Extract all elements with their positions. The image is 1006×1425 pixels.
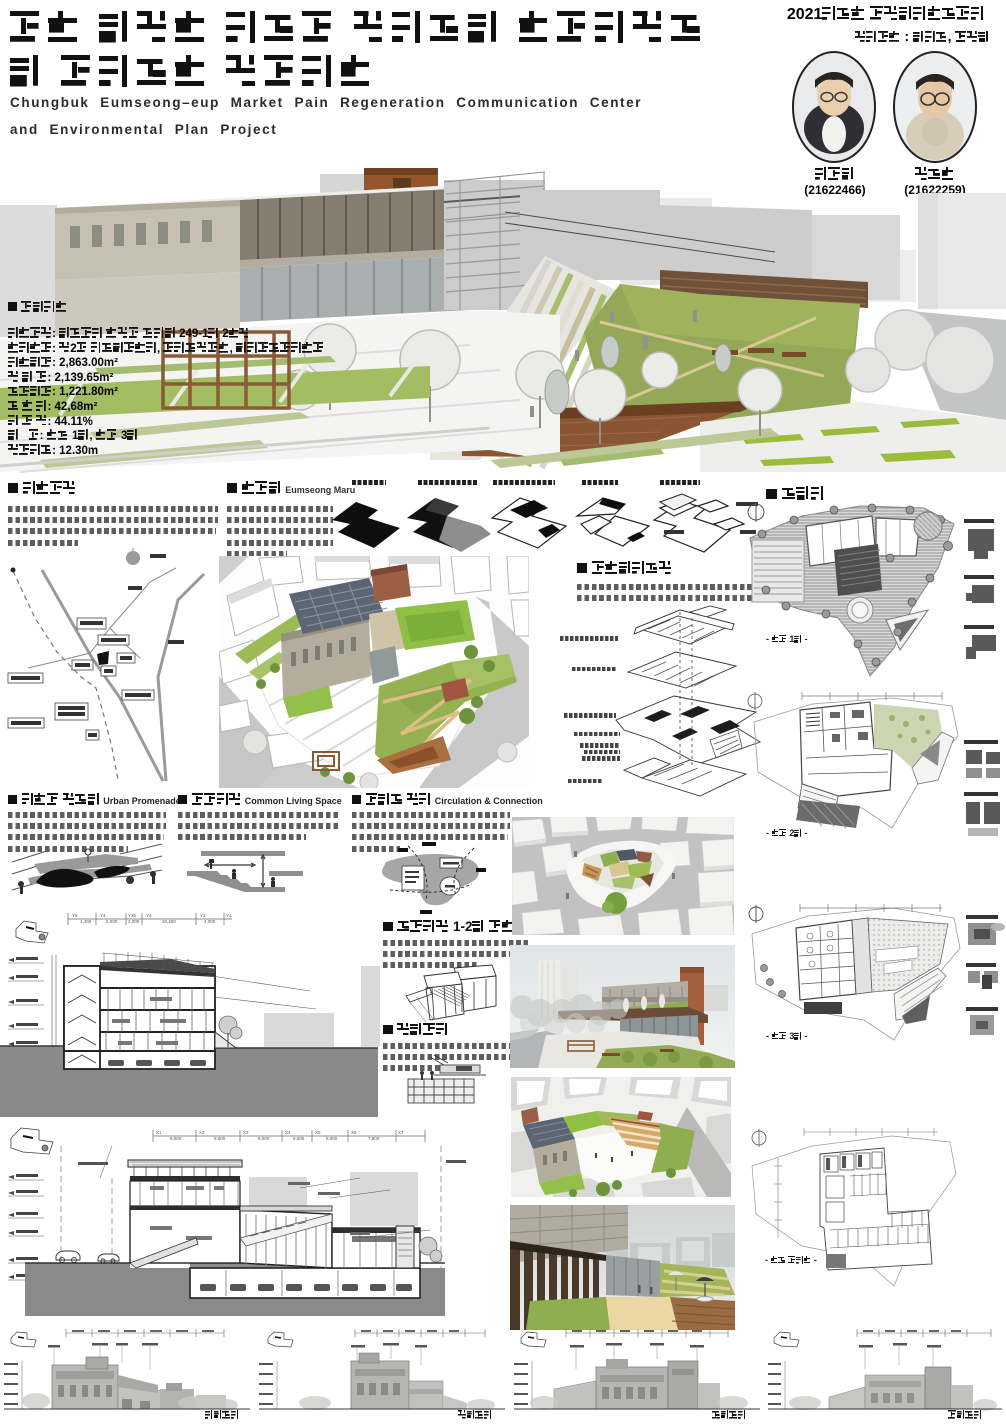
svg-text:Y1: Y1 — [226, 913, 232, 918]
svg-text:Y2: Y2 — [200, 913, 206, 918]
svg-text:Y3: Y3 — [146, 913, 152, 918]
svg-text:4,000: 4,000 — [204, 919, 216, 924]
svg-text:Y3b: Y3b — [128, 913, 137, 918]
svg-text:X2: X2 — [199, 1130, 205, 1135]
svg-text:X1: X1 — [156, 1130, 162, 1135]
svg-text:9,600: 9,600 — [214, 1136, 226, 1141]
svg-text:X6: X6 — [351, 1130, 357, 1135]
svg-text:6,500: 6,500 — [293, 1136, 305, 1141]
svg-text:X3: X3 — [243, 1130, 249, 1135]
svg-text:8,000: 8,000 — [326, 1136, 338, 1141]
svg-text:Y5: Y5 — [72, 913, 78, 918]
svg-text:9,000: 9,000 — [170, 1136, 182, 1141]
svg-text:9,500: 9,500 — [258, 1136, 270, 1141]
svg-text:X7: X7 — [398, 1130, 404, 1135]
svg-text:2,000: 2,000 — [128, 919, 140, 924]
svg-text:X5: X5 — [315, 1130, 321, 1135]
svg-text:X4: X4 — [285, 1130, 291, 1135]
svg-text:10,400: 10,400 — [162, 919, 176, 924]
svg-text:5,000: 5,000 — [106, 919, 118, 924]
svg-text:7,900: 7,900 — [368, 1136, 380, 1141]
svg-text:Y4: Y4 — [100, 913, 106, 918]
svg-text:1,400: 1,400 — [80, 919, 92, 924]
